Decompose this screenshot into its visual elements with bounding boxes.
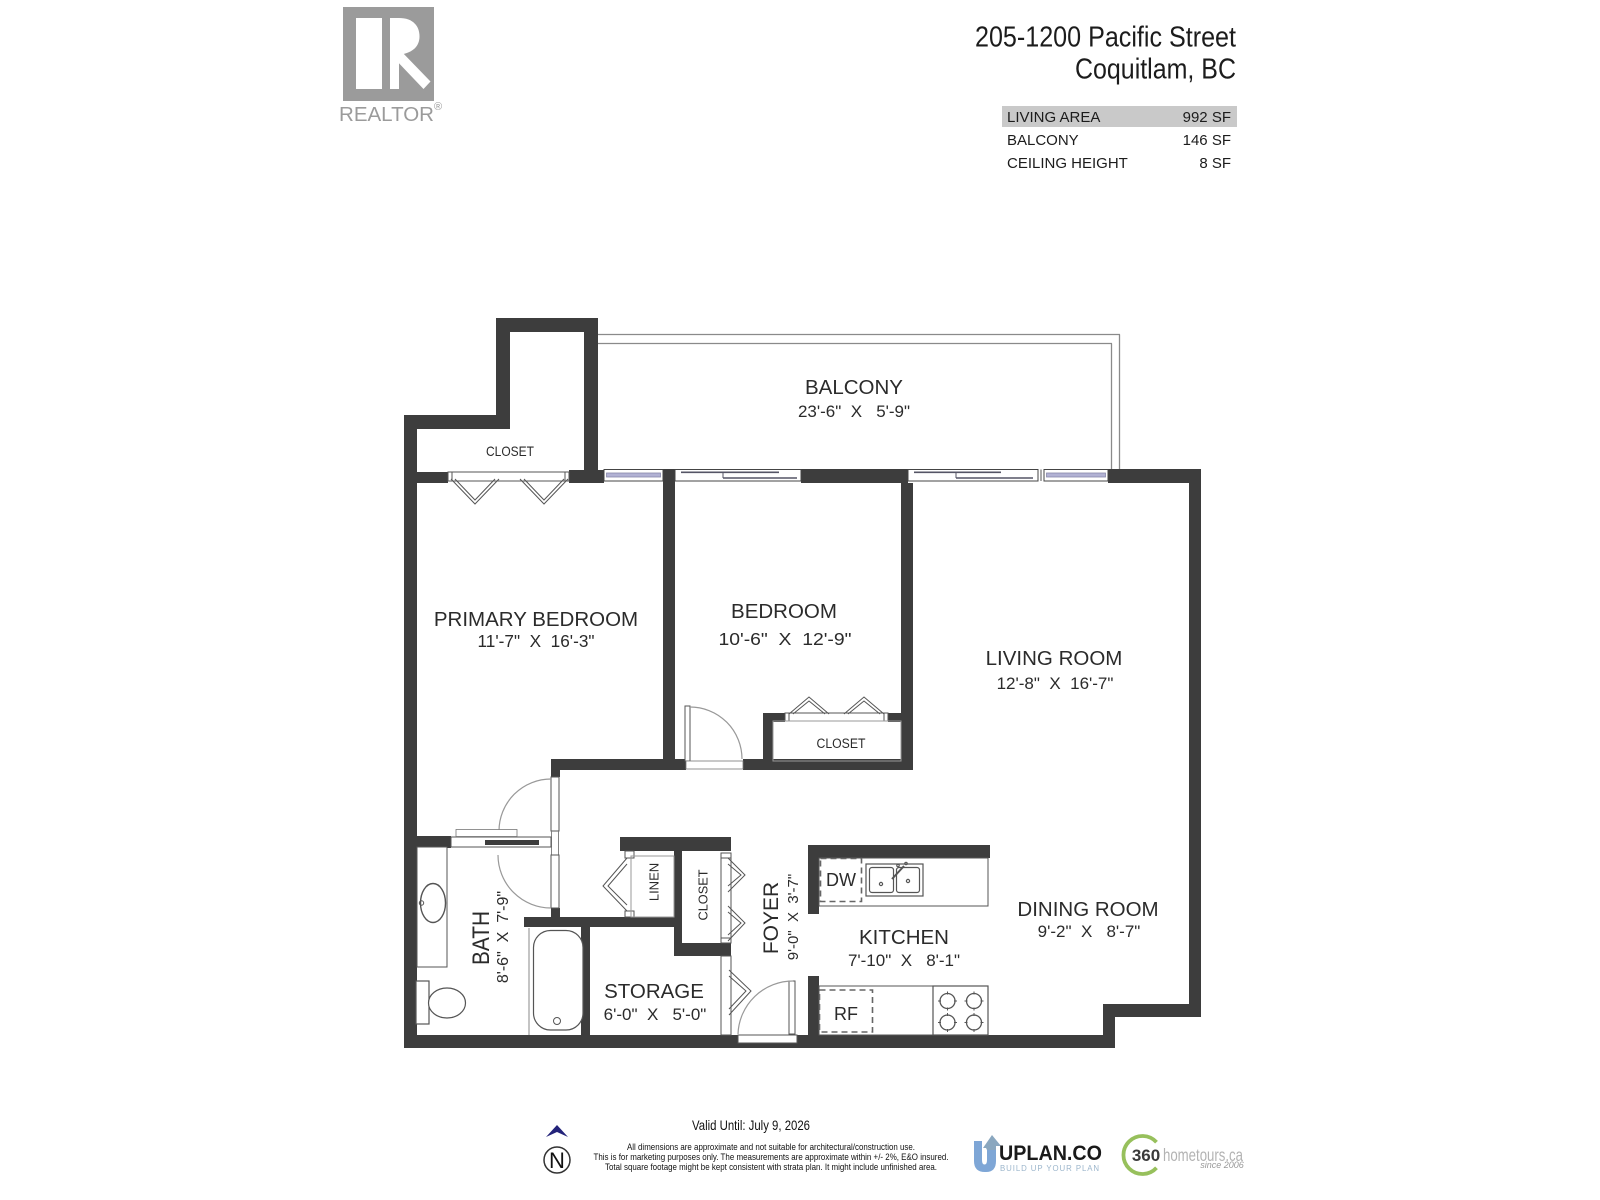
svg-text:LIVING AREA: LIVING AREA	[1007, 109, 1100, 126]
svg-text:BEDROOM: BEDROOM	[731, 600, 837, 623]
svg-text:PRIMARY BEDROOM: PRIMARY BEDROOM	[434, 608, 638, 631]
svg-text:N: N	[549, 1148, 565, 1173]
svg-text:360: 360	[1132, 1146, 1160, 1165]
svg-text:KITCHEN: KITCHEN	[859, 926, 949, 949]
svg-text:STORAGE: STORAGE	[604, 980, 704, 1003]
svg-text:DINING ROOM: DINING ROOM	[1017, 898, 1158, 921]
svg-text:LINEN: LINEN	[647, 863, 662, 901]
svg-text:CLOSET: CLOSET	[817, 736, 866, 751]
svg-text:DW: DW	[826, 870, 856, 890]
svg-text:BALCONY: BALCONY	[805, 376, 903, 399]
svg-text:LIVING ROOM: LIVING ROOM	[986, 647, 1123, 670]
svg-text:6'-0" X 5'-0": 6'-0" X 5'-0"	[604, 1005, 707, 1024]
svg-text:10'-6" X 12'-9": 10'-6" X 12'-9"	[719, 629, 852, 649]
svg-text:23'-6" X 5'-9": 23'-6" X 5'-9"	[798, 402, 910, 421]
svg-text:9'-2" X 8'-7": 9'-2" X 8'-7"	[1038, 922, 1141, 941]
svg-text:UPLAN.CO: UPLAN.CO	[999, 1141, 1102, 1165]
svg-text:7'-10" X 8'-1": 7'-10" X 8'-1"	[848, 951, 960, 970]
svg-text:REALTOR: REALTOR	[339, 104, 434, 126]
svg-text:8'-6" X 7'-9": 8'-6" X 7'-9"	[495, 891, 512, 983]
svg-text:11'-7" X 16'-3": 11'-7" X 16'-3"	[478, 631, 595, 651]
svg-text:146 SF: 146 SF	[1183, 132, 1231, 149]
svg-text:Valid Until: July 9, 2026: Valid Until: July 9, 2026	[692, 1117, 810, 1133]
svg-text:8 SF: 8 SF	[1199, 155, 1231, 172]
svg-text:FOYER: FOYER	[760, 882, 783, 954]
svg-text:CLOSET: CLOSET	[696, 869, 711, 920]
svg-text:205-1200 Pacific Street: 205-1200 Pacific Street	[975, 22, 1236, 54]
svg-text:BATH: BATH	[468, 911, 495, 965]
svg-text:since 2006: since 2006	[1200, 1160, 1244, 1170]
svg-text:BALCONY: BALCONY	[1007, 132, 1079, 149]
svg-text:CLOSET: CLOSET	[486, 443, 534, 459]
svg-text:CEILING HEIGHT: CEILING HEIGHT	[1007, 155, 1128, 172]
svg-text:992 SF: 992 SF	[1183, 109, 1231, 126]
svg-text:®: ®	[434, 101, 442, 113]
svg-text:Coquitlam, BC: Coquitlam, BC	[1075, 54, 1236, 86]
svg-text:9'-0" X 3'-7": 9'-0" X 3'-7"	[785, 874, 802, 960]
svg-text:12'-8" X 16'-7": 12'-8" X 16'-7"	[997, 674, 1114, 693]
svg-text:BUILD UP YOUR PLAN: BUILD UP YOUR PLAN	[1000, 1163, 1100, 1173]
svg-text:Total square footage might be: Total square footage might be kept consi…	[605, 1162, 937, 1173]
svg-text:RF: RF	[834, 1004, 858, 1024]
